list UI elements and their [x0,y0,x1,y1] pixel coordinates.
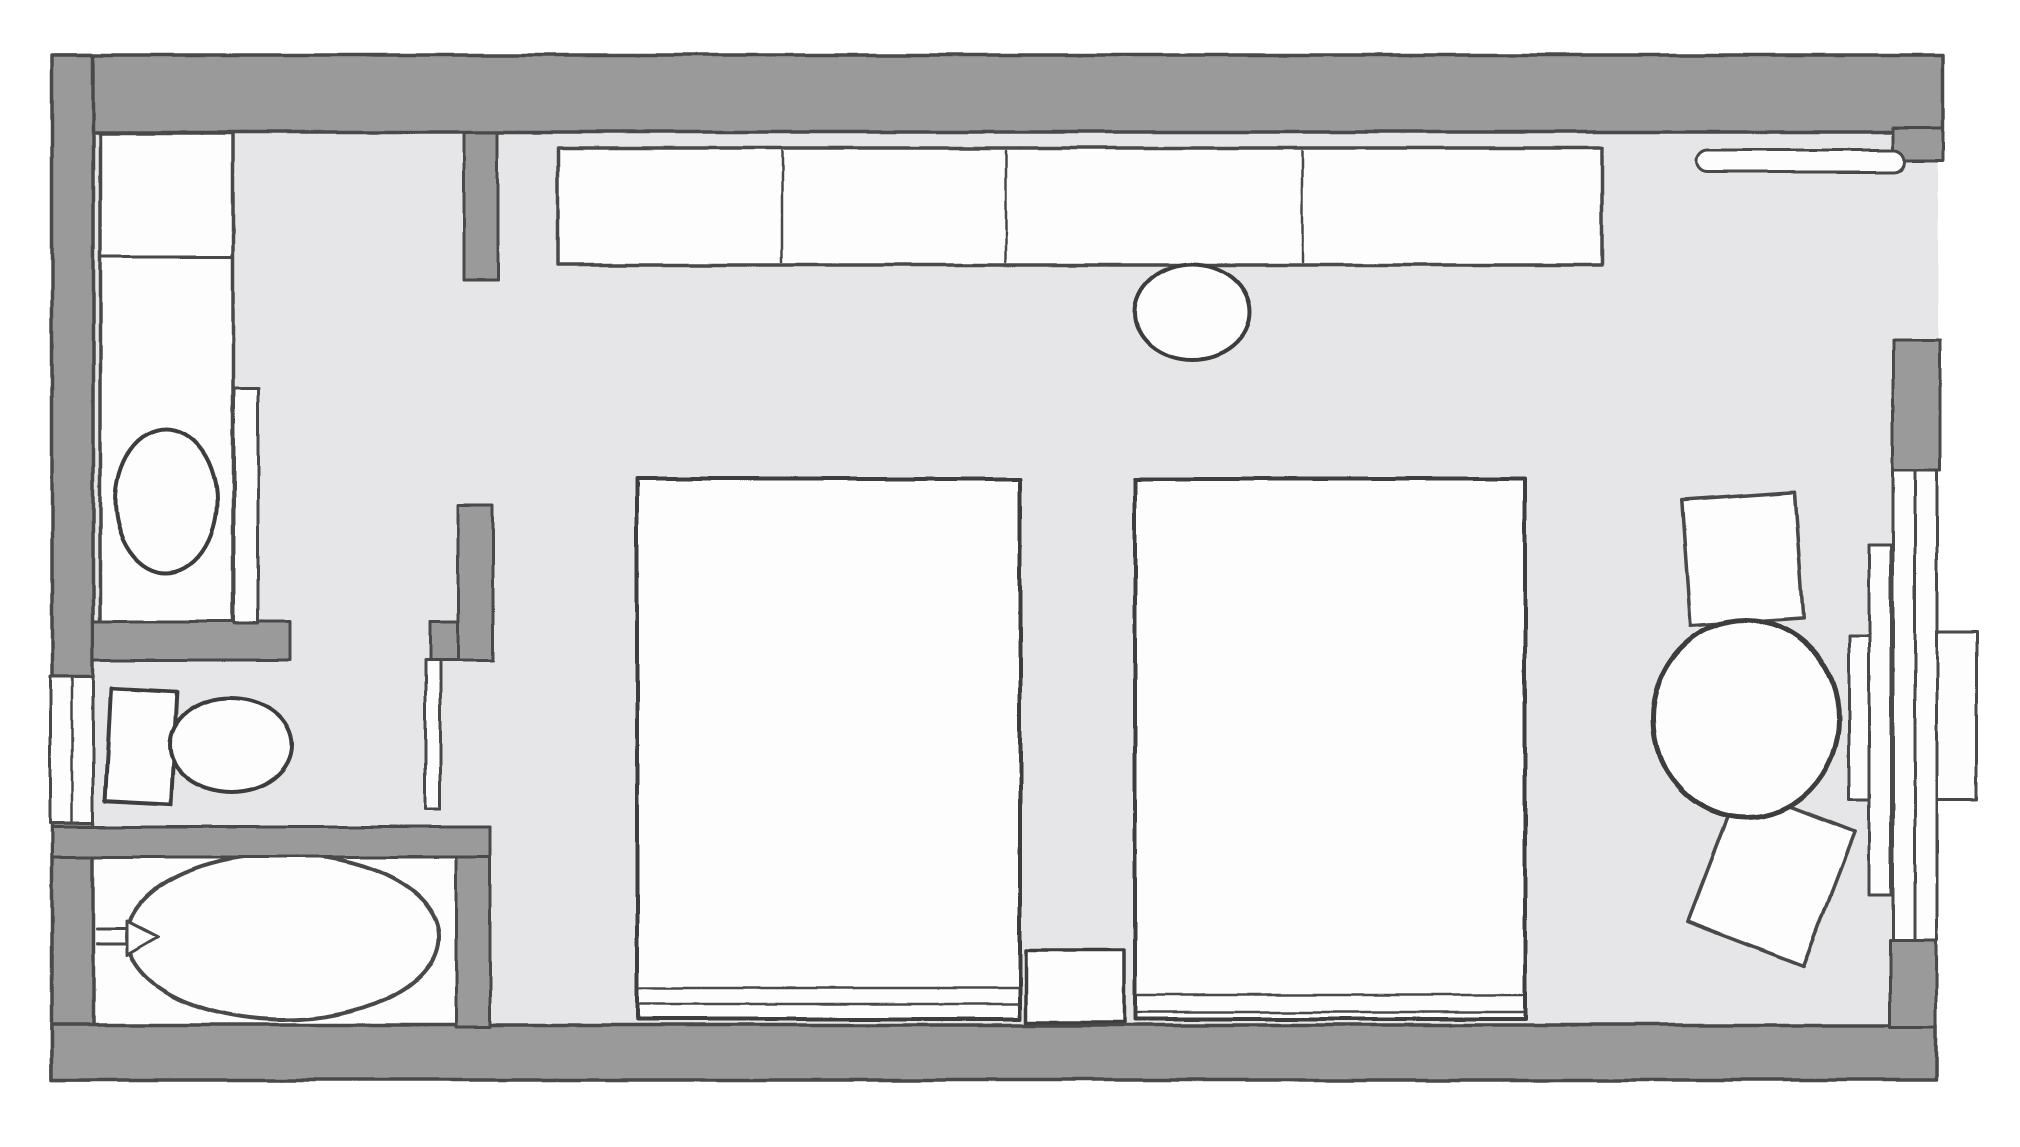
wall-bottom [52,1025,1936,1080]
wall-toilet-tub-divider [52,827,490,857]
bed-right [1135,479,1525,1019]
round-table [1653,620,1839,818]
chair-top [1682,492,1804,626]
floor-plan-layer [50,55,1977,1080]
wall-entry-stub [464,132,498,280]
wall-vanity-toilet-divider [93,622,290,660]
floor-plan-sketch [0,0,2020,1147]
wall-corridor-vertical [458,505,493,660]
floor-plan-svg [0,0,2020,1147]
wardrobe-console-cabinet [558,148,1602,265]
curtain-rail [1697,150,1905,172]
window-outer-sill [1937,632,1977,800]
wall-top [55,55,1943,132]
wall-window-pier-top [1893,340,1940,470]
toilet-tank [105,688,177,804]
window-inner-strip [1869,545,1891,895]
door-leaf-vanity [234,388,258,624]
nightstand [1026,950,1124,1022]
bed-left [637,479,1020,1019]
sink-basin [115,429,217,573]
window-inner-sill [1849,635,1869,800]
window-glazing-outer [1915,470,1937,940]
stool-seat [1134,264,1250,360]
wall-left-upper [52,55,93,677]
wall-corridor-stub [430,622,458,660]
window-glazing-inner [1893,470,1915,940]
door-leaf-toilet [425,660,440,810]
bathtub [127,854,439,1020]
wall-window-pier-bottom [1890,940,1936,1027]
toilet-bowl [170,698,292,792]
